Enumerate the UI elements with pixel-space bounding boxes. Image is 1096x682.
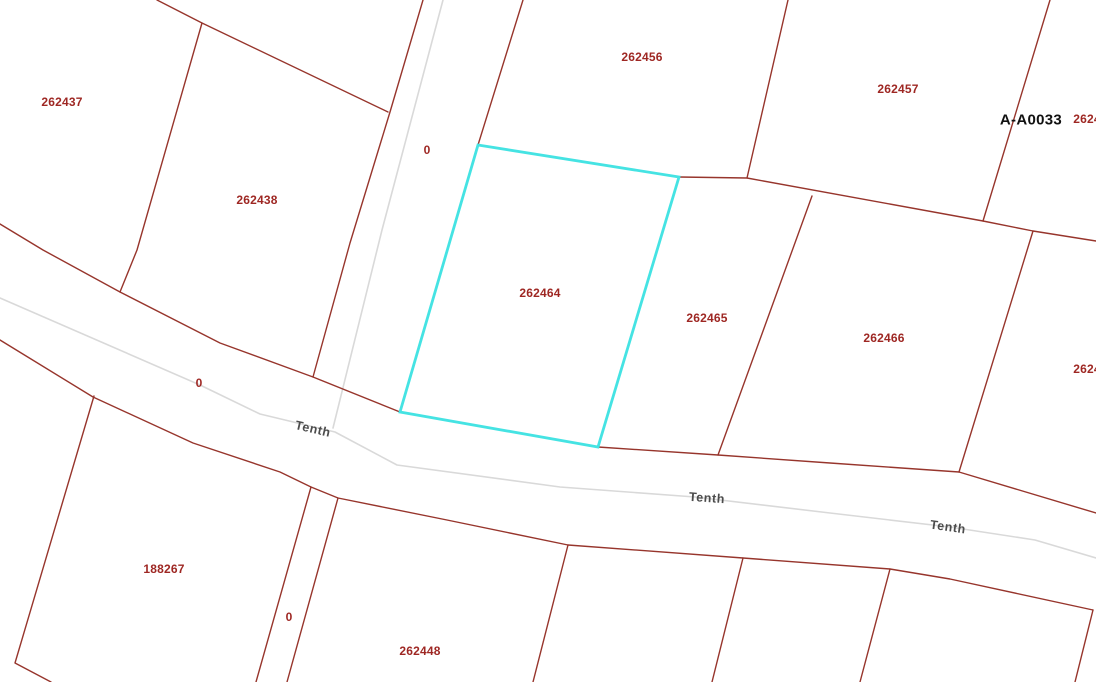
parcel-label-262457[interactable]: 262457 — [877, 82, 918, 96]
parcel-boundary-line — [287, 498, 338, 682]
parcel-label-262465[interactable]: 262465 — [686, 311, 727, 325]
parcel-boundary-line — [478, 0, 523, 145]
parcel-label-262466[interactable]: 262466 — [863, 331, 904, 345]
parcel-label-262437[interactable]: 262437 — [41, 95, 82, 109]
parcel-boundary-line — [747, 0, 788, 178]
map-lines — [0, 0, 1096, 682]
parcel-boundary-line — [712, 558, 743, 682]
parcel-label-262438[interactable]: 262438 — [236, 193, 277, 207]
parcel-label-262456[interactable]: 262456 — [621, 50, 662, 64]
parcel-boundary-line — [1075, 610, 1093, 682]
parcel-boundary-line — [718, 196, 812, 455]
parcel-map-canvas[interactable]: 262437 262438 262456 262457 262464 26246… — [0, 0, 1096, 682]
road-centerline — [333, 0, 443, 428]
parcel-boundary-line — [15, 396, 94, 682]
road-zero-label-south: 0 — [286, 610, 293, 624]
parcel-label-262448[interactable]: 262448 — [399, 644, 440, 658]
parcel-boundary-line — [598, 447, 1096, 513]
parcel-boundary-line — [983, 0, 1050, 221]
parcel-boundary-line — [959, 231, 1033, 472]
parcel-boundary-line — [860, 569, 890, 682]
parcel-label-2624-right-clipped[interactable]: 2624 — [1073, 362, 1096, 376]
street-label-tenth-2: Tenth — [689, 490, 726, 506]
parcel-boundary-line — [533, 545, 568, 682]
parcel-label-262464[interactable]: 262464 — [519, 286, 560, 300]
road-zero-label-west: 0 — [196, 376, 203, 390]
survey-abstract-label: A-A0033 — [1000, 112, 1062, 129]
parcel-boundary-line — [120, 23, 202, 292]
parcel-label-2624-top-clipped[interactable]: 2624 — [1073, 112, 1096, 126]
parcel-boundary-line — [313, 0, 423, 377]
parcel-boundary-line — [157, 0, 388, 112]
parcel-boundary-line — [256, 487, 311, 682]
parcel-label-188267[interactable]: 188267 — [143, 562, 184, 576]
road-zero-label-north: 0 — [424, 143, 431, 157]
